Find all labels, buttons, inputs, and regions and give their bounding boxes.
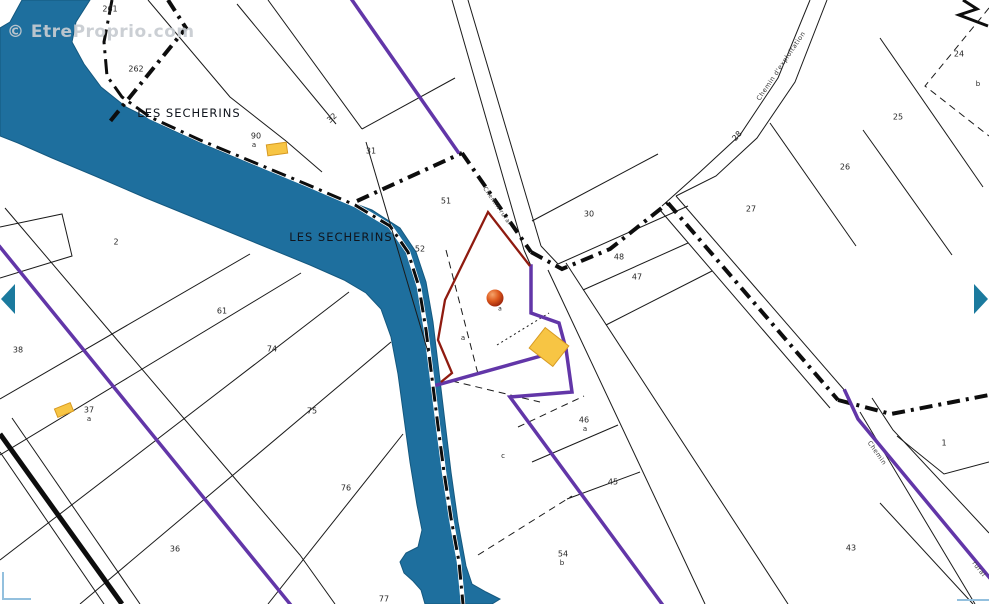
parcel-label: 262 (128, 65, 143, 74)
parcel-label: 45 (608, 478, 618, 487)
parcel-label: a (583, 425, 587, 433)
parcel-label: a (87, 415, 91, 423)
parcel-label: c (501, 452, 505, 460)
parcel-label: 36 (170, 545, 180, 554)
parcel-label: 52 (415, 245, 425, 254)
parcel-label: 37 (84, 406, 94, 415)
location-marker[interactable] (487, 290, 504, 307)
cadastre-map-screen: 26126290a315152261387437a757636773048472… (0, 0, 989, 604)
parcel-label: 27 (746, 205, 756, 214)
parcel-label: a (252, 141, 256, 149)
place-label: LES SECHERINS (289, 230, 392, 244)
parcel-label: 75 (307, 407, 317, 416)
parcel-label: 48 (614, 253, 624, 262)
parcel-label: 77 (379, 595, 389, 604)
parcel-label: 54 (558, 550, 568, 559)
parcel-label: 51 (441, 197, 451, 206)
parcel-label: 47 (632, 273, 642, 282)
parcel-label: 76 (341, 484, 351, 493)
parcel-label: 26 (840, 163, 850, 172)
parcel-label: 46 (579, 416, 589, 425)
parcel-label: 31 (366, 147, 376, 156)
place-label: LES SECHERINS (137, 106, 240, 120)
parcel-label: 261 (102, 5, 117, 14)
parcel-label: b (560, 559, 565, 567)
parcel-label: 74 (267, 345, 277, 354)
building (266, 142, 287, 156)
parcel-label: 30 (584, 210, 594, 219)
parcel-label: 25 (893, 113, 903, 122)
parcel-label: 24 (954, 50, 964, 59)
parcel-label: 38 (13, 346, 23, 355)
parcel-label: 90 (251, 132, 261, 141)
parcel-label: 1 (941, 439, 946, 448)
parcel-label: 61 (217, 307, 227, 316)
parcel-label: b (976, 80, 981, 88)
parcel-label: 2 (113, 238, 118, 247)
cadastre-map-canvas[interactable]: 26126290a315152261387437a757636773048472… (0, 0, 989, 604)
parcel-label: 43 (846, 544, 856, 553)
parcel-label: a (498, 306, 502, 313)
parcel-label: a (461, 334, 465, 342)
